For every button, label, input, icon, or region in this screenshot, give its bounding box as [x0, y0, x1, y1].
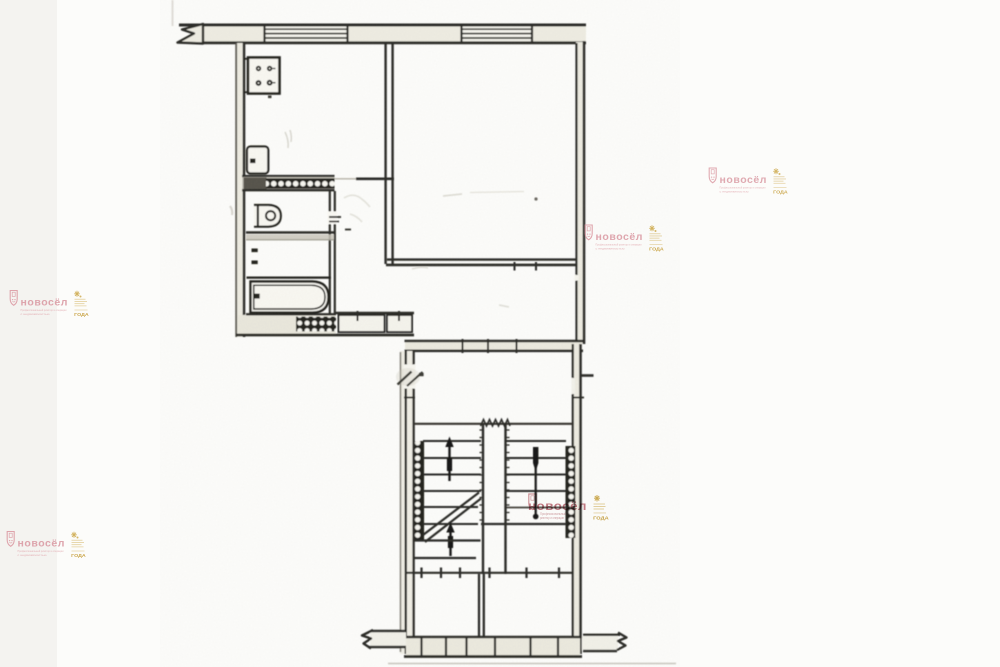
svg-text:новосёл: новосёл — [528, 499, 587, 513]
svg-text:ГОДА: ГОДА — [593, 516, 609, 521]
svg-text:риэлтор и операции: риэлтор и операции — [540, 516, 564, 520]
